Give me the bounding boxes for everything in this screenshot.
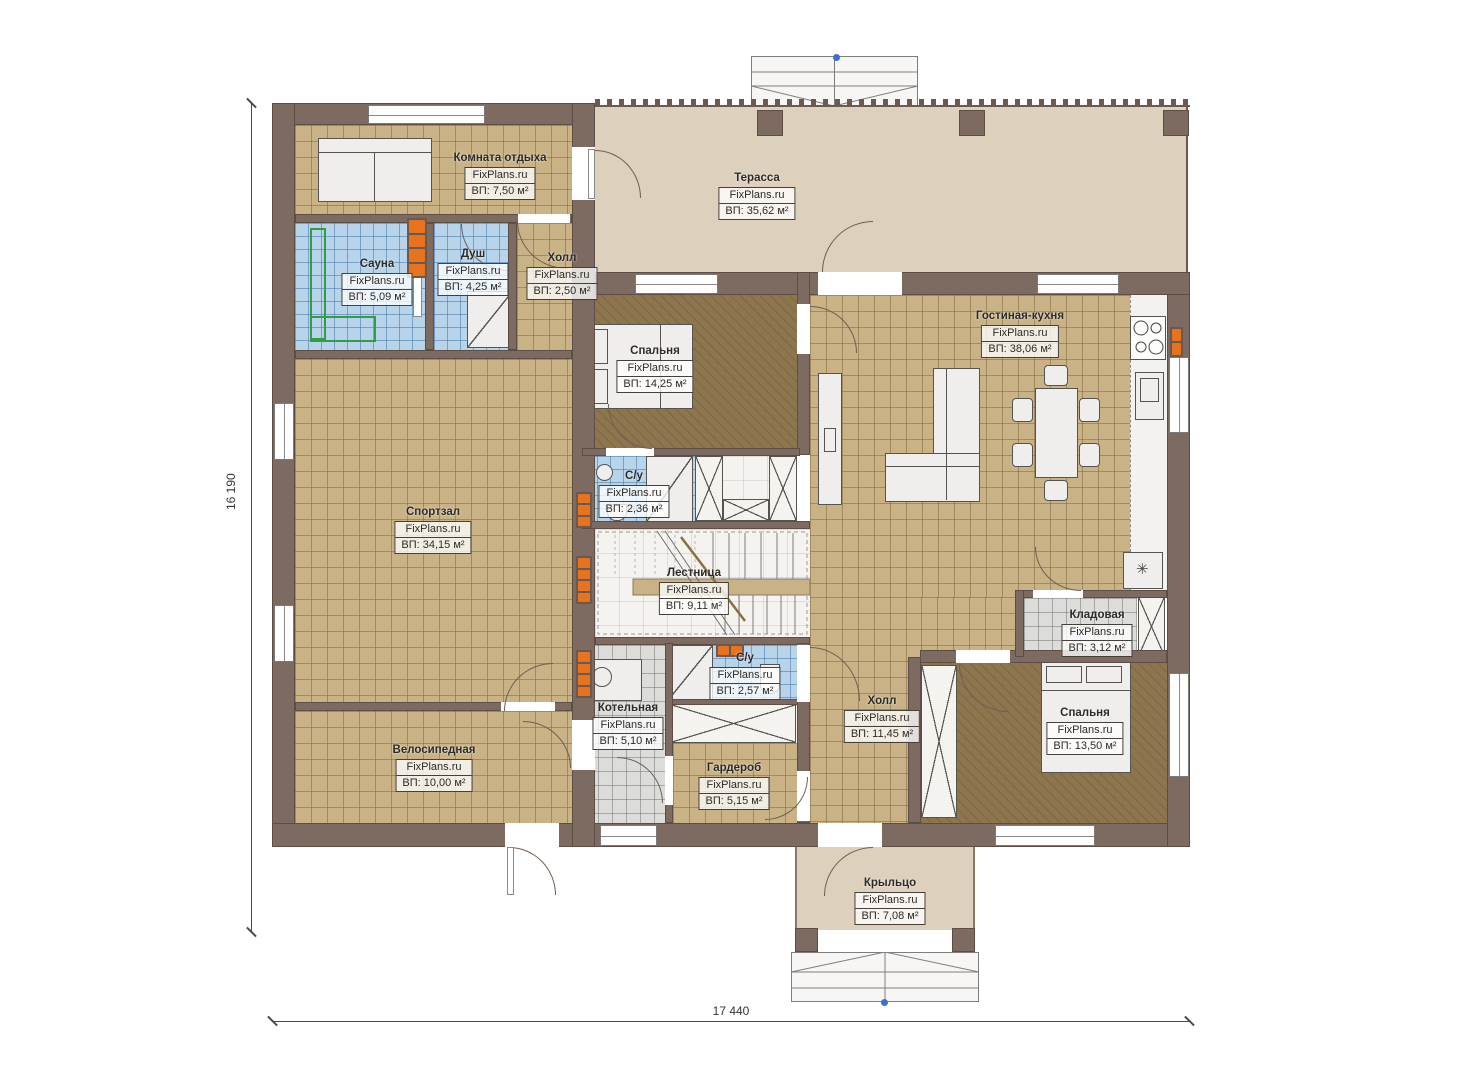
sofa-back-line <box>319 152 431 153</box>
bed-pillow <box>1086 666 1122 683</box>
room-area: ВП: 14,25 м² <box>617 376 692 392</box>
sauna-door-leaf <box>413 275 422 317</box>
window <box>600 825 657 846</box>
room-area: ВП: 11,45 м² <box>845 726 919 742</box>
tv-screen <box>824 428 836 452</box>
porch-column <box>795 928 818 952</box>
room-label-bathroom-1: С/у FixPlans.ruВП: 2,36 м² <box>598 470 669 518</box>
room-name: Душ <box>437 248 508 261</box>
dining-chair <box>1012 443 1033 467</box>
window <box>274 605 294 662</box>
dining-chair <box>1044 480 1068 501</box>
heater-cell <box>409 235 425 248</box>
watermark: FixPlans.ru <box>617 361 692 376</box>
room-name: Спортзал <box>394 506 471 519</box>
room-area: ВП: 2,50 м² <box>527 283 596 299</box>
window <box>635 274 718 294</box>
sofa-seat-line <box>886 466 979 467</box>
bed-pillow <box>594 329 608 364</box>
window <box>1037 274 1119 294</box>
dimension-line-horizontal <box>272 1021 1190 1022</box>
door-opening <box>956 650 1010 663</box>
window <box>274 403 294 460</box>
terrace-column <box>1163 110 1189 136</box>
room-label-boiler: Котельная FixPlans.ruВП: 5,10 м² <box>592 702 663 750</box>
watermark: FixPlans.ru <box>396 760 471 775</box>
radiator-cell <box>578 593 590 603</box>
wall-left <box>272 103 295 847</box>
watermark: FixPlans.ru <box>710 668 779 683</box>
room-label-bathroom-2: С/у FixPlans.ruВП: 2,57 м² <box>709 652 780 700</box>
dining-chair <box>1079 443 1100 467</box>
shower-cabin <box>467 291 513 348</box>
wardrobe-cabinet <box>695 456 723 521</box>
radiator-cell <box>578 675 590 685</box>
terrace-edge-line <box>595 105 1190 107</box>
radiator-cell <box>578 652 590 662</box>
room-name: Крыльцо <box>854 877 925 890</box>
room-area: ВП: 38,06 м² <box>982 341 1057 357</box>
room-label-terrace: Терасса FixPlans.ruВП: 35,62 м² <box>718 172 795 220</box>
door-opening <box>818 823 882 847</box>
room-name: Велосипедная <box>393 744 476 757</box>
wardrobe-cabinet <box>723 499 769 521</box>
wall-bedroom1-east <box>797 272 810 455</box>
radiator-cell <box>1172 329 1181 341</box>
door-leaf <box>507 847 514 895</box>
room-name: С/у <box>598 470 669 483</box>
floor-terrace <box>595 106 1188 272</box>
radiator-cell <box>578 517 590 526</box>
wall-storage-west <box>1015 590 1024 657</box>
room-name: Спальня <box>1046 707 1123 720</box>
watermark: FixPlans.ru <box>395 522 470 537</box>
room-area: ВП: 9,11 м² <box>660 598 728 614</box>
room-label-staircase: Лестница FixPlans.ruВП: 9,11 м² <box>659 567 729 615</box>
room-area: ВП: 2,57 м² <box>710 683 779 699</box>
watermark: FixPlans.ru <box>342 274 411 289</box>
room-area: ВП: 7,08 м² <box>855 908 924 924</box>
room-label-shower: Душ FixPlans.ruВП: 4,25 м² <box>437 248 508 296</box>
room-area: ВП: 35,62 м² <box>719 203 794 219</box>
room-area: ВП: 5,09 м² <box>342 289 411 305</box>
room-label-garderob: Гардероб FixPlans.ruВП: 5,15 м² <box>698 762 769 810</box>
wardrobe-cabinet <box>921 665 957 818</box>
room-area: ВП: 5,15 м² <box>699 793 768 809</box>
watermark: FixPlans.ru <box>593 718 662 733</box>
room-label-gym: Спортзал FixPlans.ruВП: 34,15 м² <box>394 506 471 554</box>
axis-marker-dot <box>833 54 840 61</box>
window <box>995 825 1095 846</box>
wall-shower-hall <box>508 223 517 350</box>
sofa <box>318 138 432 202</box>
room-area: ВП: 10,00 м² <box>396 775 471 791</box>
room-area: ВП: 2,36 м² <box>599 501 668 517</box>
radiator-cell <box>578 494 590 503</box>
dimension-label-horizontal: 17 440 <box>713 1004 750 1018</box>
axis-marker-dot <box>881 999 888 1006</box>
watermark: FixPlans.ru <box>845 711 919 726</box>
porch-steps <box>791 952 979 1002</box>
room-name: Лестница <box>659 567 729 580</box>
watermark: FixPlans.ru <box>660 583 728 598</box>
watermark: FixPlans.ru <box>438 264 507 279</box>
radiator-cell <box>578 687 590 697</box>
dimension-line-vertical <box>251 103 252 933</box>
sauna-bench <box>310 316 376 342</box>
watermark: FixPlans.ru <box>465 168 534 183</box>
room-label-storage: Кладовая FixPlans.ruВП: 3,12 м² <box>1061 609 1132 657</box>
door-opening <box>505 823 559 847</box>
wardrobe-cabinet <box>1138 597 1165 656</box>
radiator <box>576 556 592 604</box>
terrace-column <box>757 110 783 136</box>
watermark: FixPlans.ru <box>699 778 768 793</box>
room-area: ВП: 13,50 м² <box>1047 738 1122 754</box>
door-opening <box>797 304 810 354</box>
window <box>1169 673 1189 777</box>
room-name: Холл <box>844 695 920 708</box>
radiator-cell <box>578 581 590 591</box>
wardrobe-cabinet <box>671 704 796 743</box>
radiator-cell <box>1172 343 1181 355</box>
corner-sofa-short <box>885 453 980 502</box>
watermark: FixPlans.ru <box>527 268 596 283</box>
radiator-cell <box>578 664 590 674</box>
room-label-bedroom-1: Спальня FixPlans.ruВП: 14,25 м² <box>616 345 693 393</box>
bed-pillow <box>1046 666 1082 683</box>
dining-chair <box>1079 398 1100 422</box>
room-label-living-kitchen: Гостиная-кухня FixPlans.ruВП: 38,06 м² <box>976 310 1064 358</box>
watermark: FixPlans.ru <box>855 893 924 908</box>
boiler-sink <box>592 667 612 687</box>
dimension-label-vertical: 16 190 <box>224 473 238 510</box>
door-opening <box>818 272 902 295</box>
room-name: Сауна <box>341 258 412 271</box>
window <box>368 105 485 124</box>
room-label-bicycle: Велосипедная FixPlans.ruВП: 10,00 м² <box>393 744 476 792</box>
stove-icon <box>1130 316 1166 360</box>
bed-pillow <box>594 369 608 404</box>
wall-stairs-south <box>595 637 810 645</box>
room-label-rest-room: Комната отдыха FixPlans.ruВП: 7,50 м² <box>453 152 546 200</box>
room-name: Холл <box>526 252 597 265</box>
room-label-hall-small: Холл FixPlans.ruВП: 2,50 м² <box>526 252 597 300</box>
floor-plan: ✳ <box>0 0 1474 1080</box>
door-opening <box>1033 590 1083 598</box>
room-label-sauna: Сауна FixPlans.ruВП: 5,09 м² <box>341 258 412 306</box>
floor-hall-main-upper <box>921 597 1015 650</box>
window <box>1169 357 1189 433</box>
room-area: ВП: 7,50 м² <box>465 183 534 199</box>
radiator-cell <box>578 570 590 580</box>
room-name: Кладовая <box>1061 609 1132 622</box>
wall-sauna-south <box>295 350 572 359</box>
room-name: Гардероб <box>698 762 769 775</box>
kitchen-sink-bowl <box>1140 378 1159 402</box>
dining-chair <box>1012 398 1033 422</box>
dining-table <box>1035 388 1078 478</box>
dining-chair <box>1044 365 1068 386</box>
watermark: FixPlans.ru <box>719 188 794 203</box>
room-area: ВП: 3,12 м² <box>1062 640 1131 656</box>
watermark: FixPlans.ru <box>1047 723 1122 738</box>
sofa-divider-line <box>374 153 375 201</box>
room-area: ВП: 5,10 м² <box>593 733 662 749</box>
door-leaf <box>588 149 595 199</box>
door-opening <box>606 448 654 456</box>
room-area: ВП: 34,15 м² <box>395 537 470 553</box>
wardrobe-cabinet <box>769 456 797 521</box>
shower-cabin <box>668 645 713 700</box>
room-name: Гостиная-кухня <box>976 310 1064 323</box>
radiator <box>1170 327 1183 357</box>
heater-cell <box>409 220 425 233</box>
wall-bath1-south <box>582 521 810 529</box>
room-name: Спальня <box>616 345 693 358</box>
room-label-porch: Крыльцо FixPlans.ruВП: 7,08 м² <box>854 877 925 925</box>
radiator-cell <box>578 558 590 568</box>
fridge-snowflake-icon: ✳ <box>1136 560 1149 578</box>
radiator <box>576 492 592 528</box>
room-label-hall-main: Холл FixPlans.ruВП: 11,45 м² <box>844 695 920 743</box>
room-name: Котельная <box>592 702 663 715</box>
watermark: FixPlans.ru <box>1062 625 1131 640</box>
door-opening <box>665 756 673 805</box>
radiator <box>576 650 592 698</box>
door-arc <box>509 847 556 895</box>
watermark: FixPlans.ru <box>982 326 1057 341</box>
sofa-seat-line <box>946 369 947 500</box>
door-opening <box>797 645 810 702</box>
porch-column <box>952 928 975 952</box>
room-name: Комната отдыха <box>453 152 546 165</box>
room-name: С/у <box>709 652 780 665</box>
room-label-bedroom-2: Спальня FixPlans.ruВП: 13,50 м² <box>1046 707 1123 755</box>
room-area: ВП: 4,25 м² <box>438 279 507 295</box>
bed-blanket-line <box>1042 690 1130 691</box>
watermark: FixPlans.ru <box>599 486 668 501</box>
radiator-cell <box>578 505 590 514</box>
room-name: Терасса <box>718 172 795 185</box>
terrace-column <box>959 110 985 136</box>
